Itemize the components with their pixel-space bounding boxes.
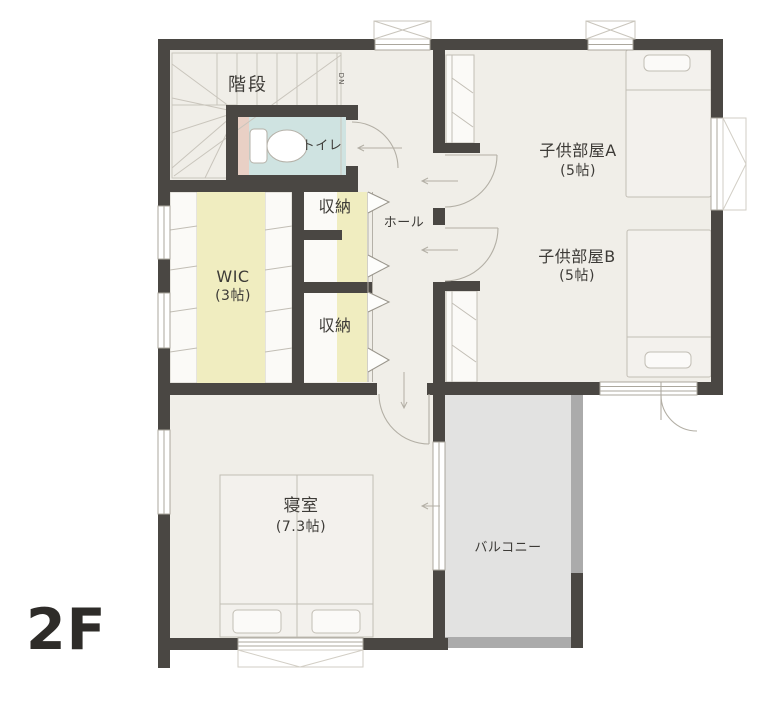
room-label-storage-top: 収納	[318, 198, 351, 216]
bed-kids-b-icon	[627, 230, 711, 377]
room-label-stairs: 階段	[228, 76, 268, 97]
room-label-hall: ホール	[384, 217, 425, 232]
room-label-bedroom: 寝室	[284, 497, 319, 517]
room-size-kids-b: (5帖)	[559, 268, 595, 284]
closet-kids-b-icon	[446, 291, 477, 382]
room-size-kids-a: (5帖)	[560, 163, 596, 179]
floor-plan-page: 階段 DN トイレ 収納 ホール WIC (3帖) 収納 子供部屋A (5帖) …	[0, 0, 768, 711]
toilet-fixture-icon	[250, 129, 307, 163]
balcony-rail-right	[571, 395, 583, 573]
window-bedroom-bottom-icon	[238, 638, 363, 667]
balcony-floor	[445, 395, 571, 637]
room-label-balcony: バルコニー	[474, 542, 541, 557]
window-hall-top-icon	[374, 21, 431, 50]
floor-number-label: 2F	[26, 597, 107, 663]
room-label-kids-b: 子供部屋B	[538, 248, 615, 266]
stairs-dn-label: DN	[337, 73, 345, 86]
window-left-wic2-icon	[158, 293, 170, 348]
window-left-bedroom-icon	[158, 430, 170, 514]
bed-kids-a-icon	[626, 50, 711, 197]
room-label-wic: WIC	[216, 268, 249, 286]
floor-plan-drawing	[0, 0, 768, 711]
room-label-kids-a: 子供部屋A	[539, 142, 616, 160]
balcony-rail-bottom	[445, 637, 583, 648]
room-size-wic: (3帖)	[215, 288, 251, 304]
closet-kids-a-icon	[446, 55, 474, 143]
window-right-kids-icon	[711, 118, 746, 210]
door-kids-b-exterior-icon	[661, 395, 697, 431]
room-label-storage-bottom: 収納	[318, 317, 351, 335]
room-label-toilet: トイレ	[302, 140, 343, 155]
window-kids-a-top-icon	[586, 21, 635, 50]
window-kids-b-bottom-icon	[600, 382, 697, 395]
window-left-wic1-icon	[158, 206, 170, 259]
room-size-bedroom: (7.3帖)	[276, 519, 326, 535]
